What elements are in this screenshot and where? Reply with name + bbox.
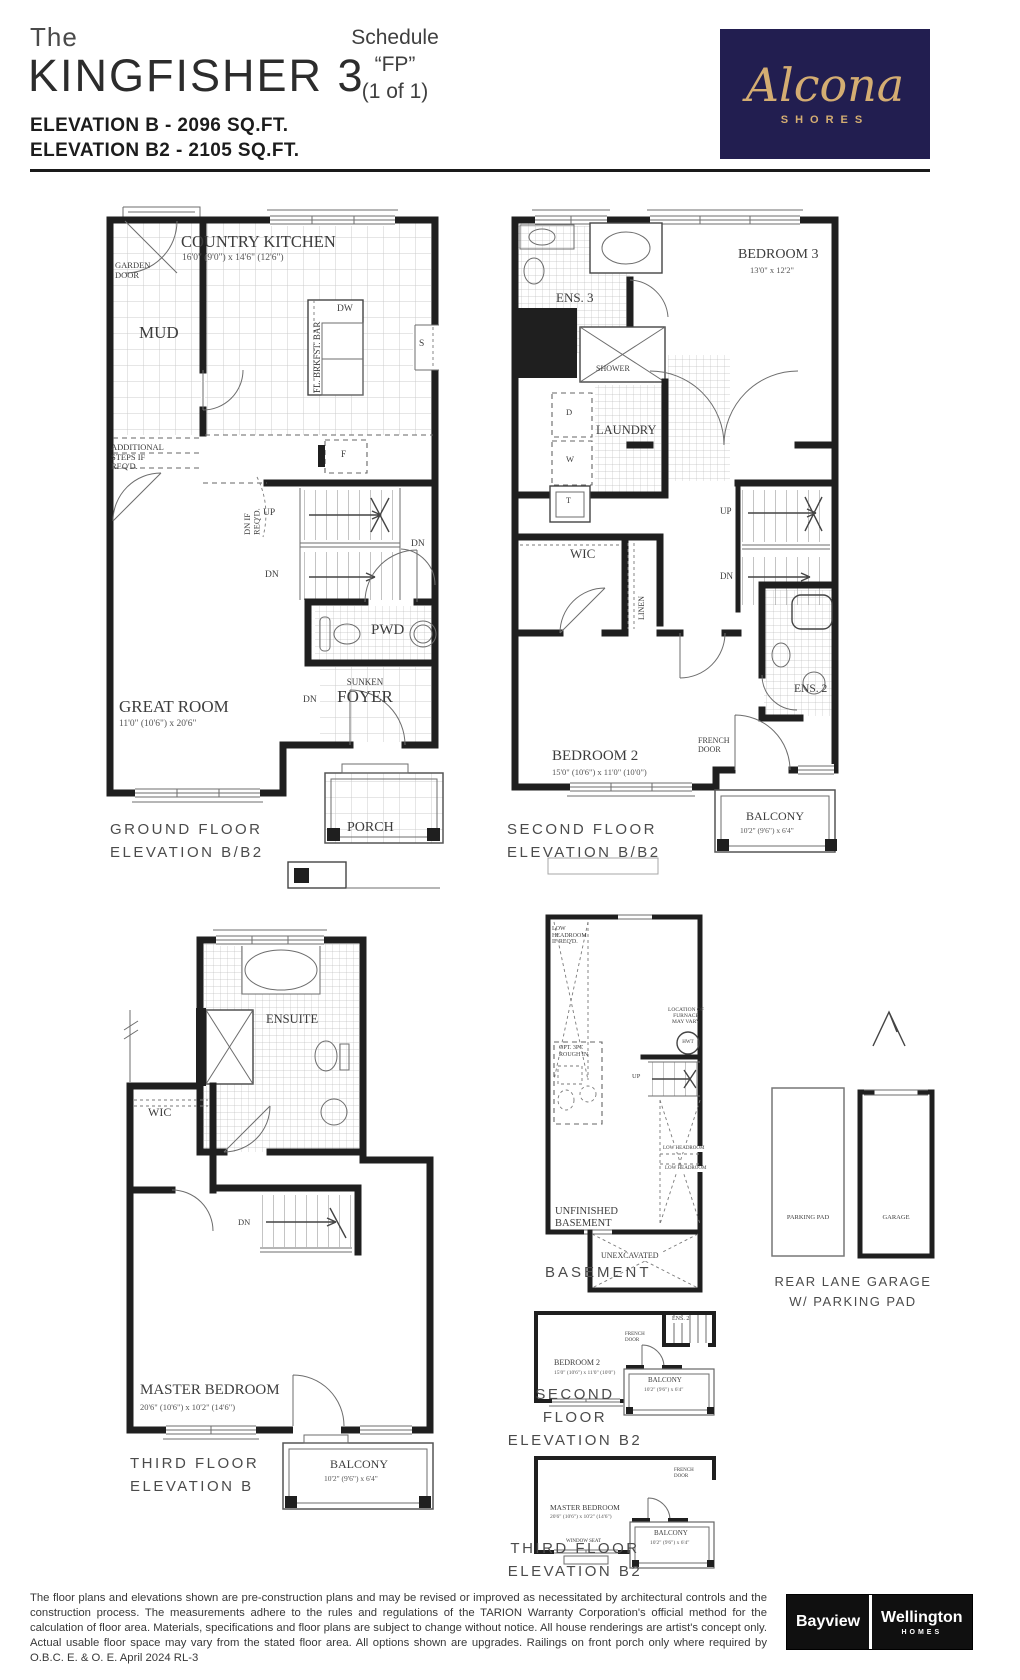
room-label-ens2: ENS. 2 [672, 1316, 689, 1323]
header-divider [30, 169, 930, 172]
logo-subtitle: SHORES [781, 114, 869, 126]
label-washer: W [566, 455, 574, 465]
label-linen: LINEN [638, 550, 647, 620]
garage-drawing [768, 1000, 938, 1270]
room-label-master-bedroom: MASTER BEDROOM [140, 1382, 280, 1399]
label-opt-3pc-rough-in: OPT. 3PC ROUGH IN [559, 1045, 588, 1058]
label-low-headroom-1: LOW HEADROOM [663, 1146, 704, 1152]
label-stairs-up: UP [720, 506, 732, 516]
disclaimer-text: The floor plans and elevations shown are… [30, 1591, 767, 1666]
label-hall-dn: DN [411, 539, 425, 550]
label-furnace-location: LOCATION OF FURNACE MAY VARY [664, 1007, 708, 1025]
bayview-wellington-logo: Bayview Wellington HOMES [786, 1594, 973, 1650]
label-shower: SHOWER [596, 365, 630, 374]
room-label-ens2: ENS. 2 [794, 683, 827, 696]
third-floor-plan: ENSUITE WIC DN MASTER BEDROOM 20'6" (10'… [108, 860, 443, 1528]
label-dishwasher: DW [337, 304, 353, 315]
label-stairs-dn: DN [265, 570, 279, 581]
label-breakfast-bar: FL. BRKFST. BAR [312, 305, 322, 393]
room-label-balcony: BALCONY [654, 1530, 688, 1538]
caption-rear-lane-garage: REAR LANE GARAGE W/ PARKING PAD [765, 1272, 941, 1312]
elevation-b2-area: ELEVATION B2 - 2105 SQ.FT. [30, 138, 299, 163]
garage-plan: PARKING PAD GARAGE [768, 1000, 938, 1270]
room-dims-great-room: 11'0" (10'6") x 20'6" [119, 719, 196, 729]
room-label-porch: PORCH [347, 820, 394, 836]
third-floor-drawing [108, 860, 443, 1528]
label-dryer: D [566, 408, 572, 418]
label-unexcavated: UNEXCAVATED [599, 1252, 661, 1261]
basement-plan: LOW HEADROOM IF REQ'D. OPT. 3PC ROUGH IN… [498, 852, 708, 1300]
label-french-door: FRENCH DOOR [625, 1332, 645, 1343]
room-label-bedroom2: BEDROOM 2 [552, 748, 638, 765]
room-dims-balcony: 10'2" (9'6") x 6'4" [644, 1387, 684, 1393]
caption-third-floor: THIRD FLOOR ELEVATION B [130, 1452, 259, 1498]
brand-prefix: The [30, 22, 78, 53]
room-label-laundry: LAUNDRY [596, 423, 656, 437]
caption-second-floor-b2: SECOND FLOOR ELEVATION B2 [505, 1383, 645, 1452]
label-stairs-dn: DN [238, 1218, 250, 1228]
label-low-headroom-if-reqd: LOW HEADROOM IF REQ'D. [552, 926, 587, 946]
room-dims-balcony: 10'2" (9'6") x 6'4" [324, 1474, 378, 1483]
room-dims-bedroom2: 15'0" (10'6") x 11'0" (10'0") [554, 1370, 615, 1376]
room-label-balcony: BALCONY [648, 1377, 682, 1385]
page-title: KINGFISHER 3 [28, 50, 365, 102]
second-floor-plan: ENS. 3 SHOWER LAUNDRY D W T BEDROOM 3 13… [500, 205, 850, 865]
schedule-note: Schedule “FP” (1 of 1) [330, 24, 460, 105]
label-parking-pad: PARKING PAD [776, 1214, 840, 1221]
logo-wellington: Wellington HOMES [872, 1595, 971, 1649]
label-dn-if-reqd: DN IF REQ'D. [243, 481, 262, 535]
label-stairs-up: UP [632, 1073, 640, 1080]
logo-homes-text: HOMES [901, 1629, 942, 1636]
ground-floor-plan: COUNTRY KITCHEN 16'0" (9'0") x 14'6" (12… [95, 205, 450, 850]
room-label-ensuite: ENSUITE [266, 1012, 318, 1026]
room-label-ens3: ENS. 3 [556, 291, 594, 306]
elevation-b-area: ELEVATION B - 2096 SQ.FT. [30, 113, 288, 138]
ground-floor-drawing [95, 205, 450, 850]
room-dims-country-kitchen: 16'0" (9'0") x 14'6" (12'6") [182, 253, 284, 263]
label-low-headroom-2: LOW HEADROOM [665, 1166, 706, 1172]
label-foyer-dn: DN [303, 695, 317, 706]
caption-basement: BASEMENT [545, 1261, 652, 1284]
room-label-balcony: BALCONY [330, 1458, 388, 1471]
label-sunken: SUNKEN [323, 677, 407, 687]
caption-third-floor-b2: THIRD FLOOR ELEVATION B2 [505, 1537, 645, 1583]
label-pantry-s: S [419, 339, 424, 350]
room-dims-bedroom3: 13'0" x 12'2" [750, 265, 794, 275]
floorplan-sheet: The KINGFISHER 3 Schedule “FP” (1 of 1) … [0, 0, 1020, 1680]
label-laundry-tub: T [566, 497, 571, 506]
room-dims-bedroom2: 15'0" (10'6") x 11'0" (10'0") [552, 767, 647, 777]
room-label-mud: MUD [139, 323, 179, 342]
caption-ground-floor: GROUND FLOOR ELEVATION B/B2 [110, 818, 264, 864]
room-label-wic: WIC [148, 1106, 171, 1119]
room-label-bedroom3: BEDROOM 3 [738, 247, 819, 263]
room-label-pwd: PWD [371, 622, 404, 639]
room-label-bedroom2: BEDROOM 2 [554, 1359, 600, 1368]
room-label-great-room: GREAT ROOM [119, 697, 229, 716]
alcona-shores-logo: Alcona SHORES [720, 29, 930, 159]
room-label-foyer: FOYER [323, 687, 407, 706]
logo-bayview: Bayview [787, 1595, 869, 1649]
basement-drawing [498, 852, 708, 1300]
label-french-door: FRENCH DOOR [674, 1468, 694, 1479]
logo-bayview-text: Bayview [796, 1613, 860, 1631]
room-label-master-bedroom: MASTER BEDROOM [550, 1504, 620, 1512]
room-label-country-kitchen: COUNTRY KITCHEN [181, 233, 336, 251]
logo-wellington-text: Wellington [881, 1609, 962, 1627]
room-dims-master-bedroom: 20'6" (10'6") x 10'2" (14'6") [140, 1402, 235, 1412]
label-garage: GARAGE [866, 1214, 926, 1221]
label-french-door: FRENCH DOOR [698, 737, 730, 755]
room-label-wic: WIC [570, 547, 595, 562]
label-fridge: F [341, 449, 346, 459]
label-garden-door: GARDEN DOOR [115, 261, 150, 280]
second-floor-drawing [500, 205, 850, 865]
room-dims-master-bedroom: 20'6" (10'6") x 10'2" (14'6") [550, 1514, 612, 1520]
room-dims-balcony: 10'2" (9'6") x 6'4" [740, 826, 794, 835]
label-additional-steps: ADDITIONAL STEPS IF REQ'D. [111, 443, 164, 472]
logo-name: Alcona [746, 62, 904, 108]
label-hwt: HWT [678, 1040, 698, 1046]
room-dims-balcony: 10'2" (9'6") x 6'4" [650, 1540, 690, 1546]
label-unfinished-basement: UNFINISHED BASEMENT [555, 1206, 618, 1230]
room-label-balcony: BALCONY [746, 810, 804, 823]
label-stairs-up: UP [263, 508, 275, 519]
label-stairs-dn: DN [720, 571, 733, 581]
